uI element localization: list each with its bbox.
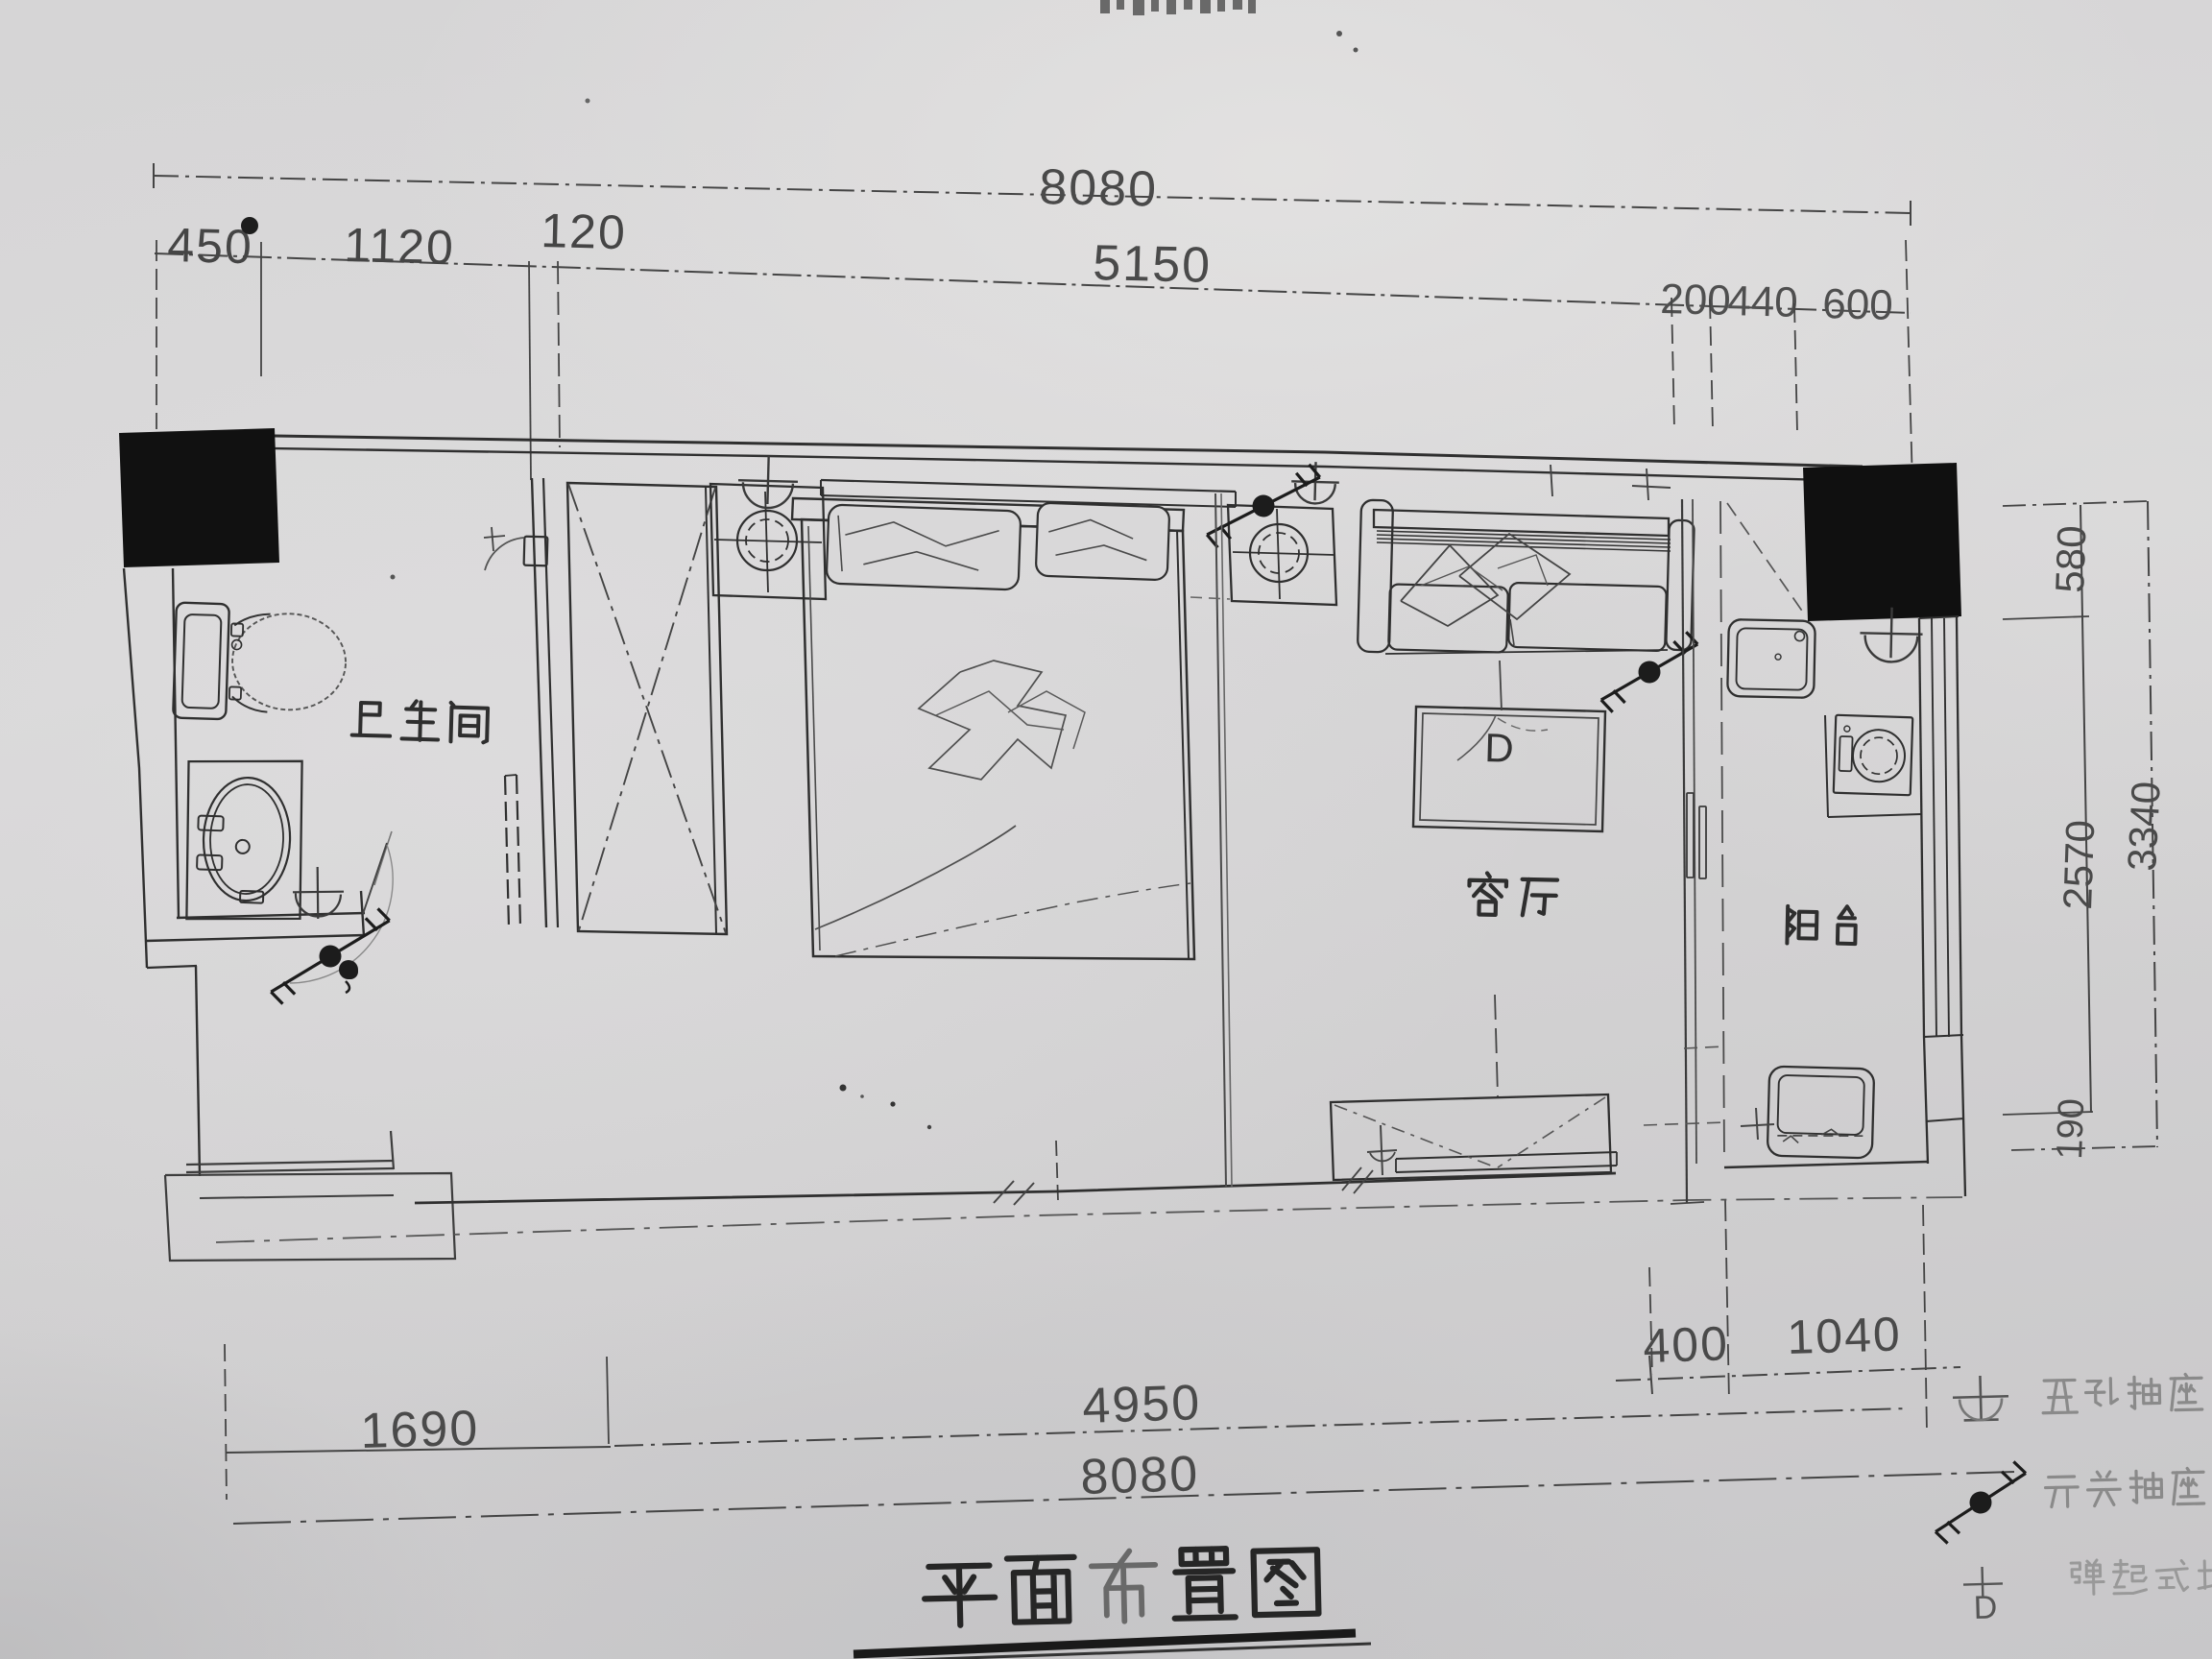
svg-text:5150: 5150 (1093, 235, 1213, 294)
svg-text:190: 190 (2050, 1097, 2092, 1160)
svg-text:450: 450 (167, 218, 254, 274)
svg-text:D: D (1973, 1589, 2000, 1626)
svg-text:440: 440 (1727, 277, 1799, 326)
svg-text:1040: 1040 (1787, 1307, 1903, 1364)
svg-text:1690: 1690 (360, 1401, 480, 1459)
svg-text:8080: 8080 (1080, 1446, 1200, 1505)
svg-text:400: 400 (1643, 1316, 1730, 1373)
svg-text:D: D (1484, 725, 1517, 771)
svg-text:3340: 3340 (2119, 781, 2169, 873)
svg-text:2570: 2570 (2055, 819, 2103, 910)
svg-text:120: 120 (541, 204, 628, 259)
svg-text:580: 580 (2047, 525, 2094, 594)
svg-text:4950: 4950 (1082, 1375, 1202, 1434)
svg-text:200: 200 (1660, 276, 1732, 325)
svg-text:600: 600 (1822, 280, 1894, 329)
svg-text:1120: 1120 (344, 218, 456, 275)
svg-text:8080: 8080 (1039, 159, 1159, 218)
